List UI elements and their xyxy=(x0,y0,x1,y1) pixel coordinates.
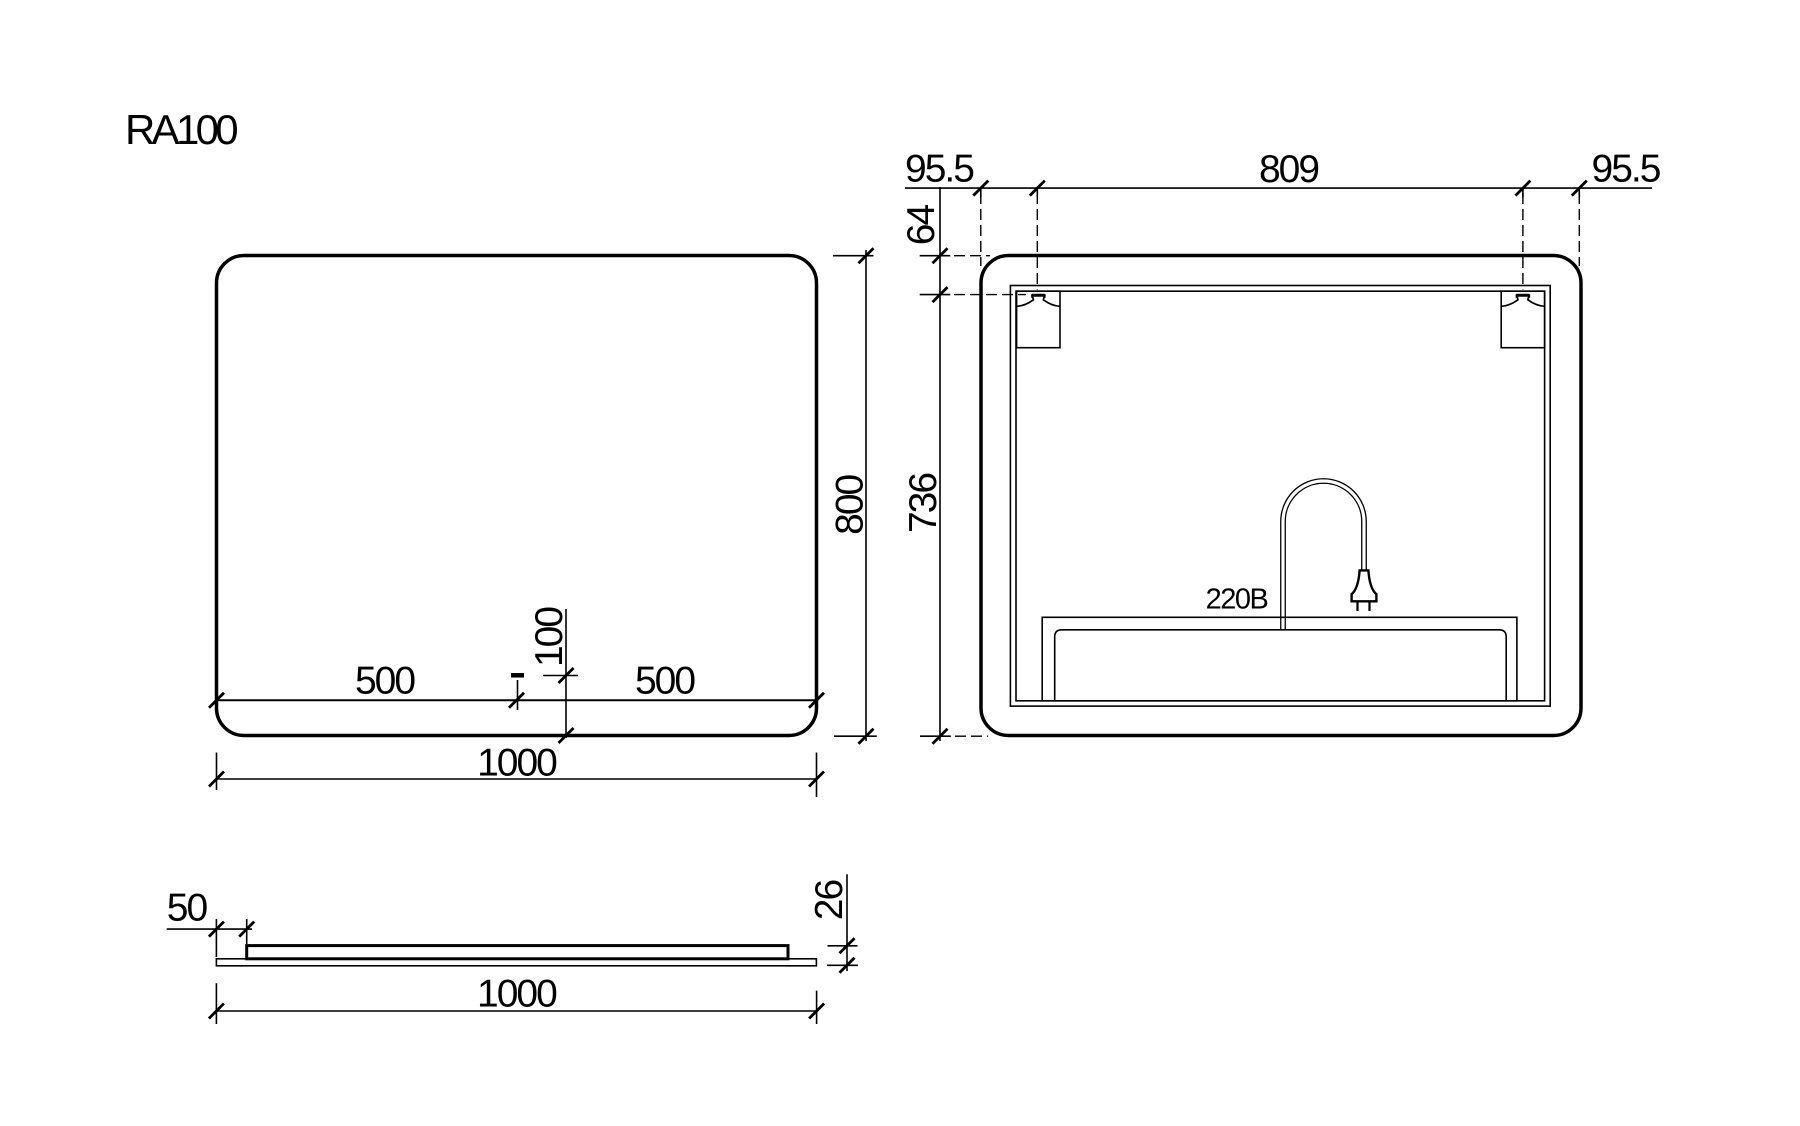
svg-text:500: 500 xyxy=(355,660,415,703)
svg-text:809: 809 xyxy=(1259,148,1318,191)
svg-text:736: 736 xyxy=(902,474,945,533)
svg-text:100: 100 xyxy=(528,607,571,667)
svg-text:1000: 1000 xyxy=(477,973,557,1016)
svg-text:1000: 1000 xyxy=(477,742,557,785)
svg-text:95.5: 95.5 xyxy=(1592,148,1661,191)
svg-text:RA100: RA100 xyxy=(125,106,237,153)
svg-text:800: 800 xyxy=(829,474,872,534)
svg-text:26: 26 xyxy=(808,881,851,921)
svg-text:95.5: 95.5 xyxy=(905,148,974,191)
svg-text:50: 50 xyxy=(167,887,208,930)
svg-text:64: 64 xyxy=(900,205,943,246)
svg-text:220B: 220B xyxy=(1206,584,1268,616)
svg-text:500: 500 xyxy=(635,660,695,703)
